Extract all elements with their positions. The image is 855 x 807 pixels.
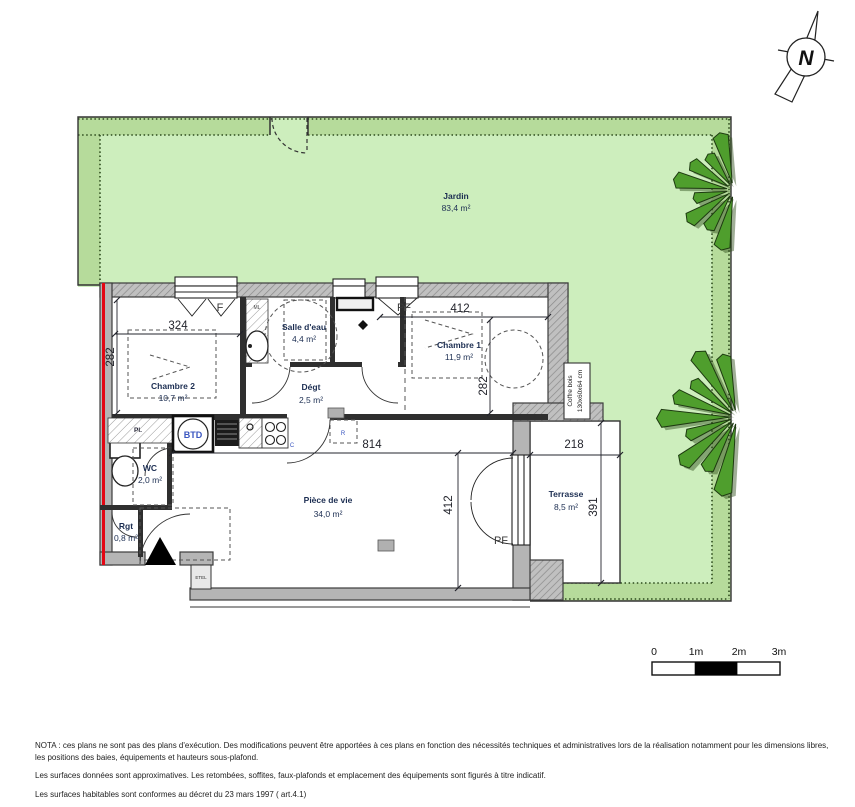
note-nota: NOTA : ces plans ne sont pas des plans d… — [35, 740, 835, 763]
note-surfaces: Les surfaces données sont approximatives… — [35, 770, 835, 782]
label-etel: ETEL — [195, 575, 207, 580]
room-label-rgt: Rgt — [119, 521, 133, 531]
room-area-degt: 2,5 m² — [299, 395, 323, 405]
label-pf-top: PF — [397, 302, 411, 314]
room-label-jardin: Jardin — [443, 191, 469, 201]
toilet-bowl — [112, 456, 138, 486]
scale-tick-1m: 1m — [689, 646, 704, 658]
room-area-chambre2: 10,7 m² — [159, 393, 188, 403]
scale-tick-3m: 3m — [772, 646, 787, 658]
label-washing-machine: ML — [254, 305, 261, 311]
label-coffre-2: 130x60x64 cm — [577, 370, 584, 412]
label-coffre-1: Coffre bois — [567, 375, 574, 407]
dim-piece-width: 814 — [362, 439, 382, 451]
room-label-chambre1: Chambre 1 — [437, 340, 481, 350]
label-cooktop: C — [290, 443, 295, 449]
north-label: N — [798, 47, 814, 70]
note-decret: Les surfaces habitables sont conformes a… — [35, 789, 835, 801]
label-btd: BTD — [184, 430, 203, 440]
room-area-piece-de-vie: 34,0 m² — [314, 509, 343, 519]
floor-plan-svg: Jardin 83,4 m² — [0, 0, 855, 738]
room-area-wc: 2,0 m² — [138, 475, 162, 485]
room-area-salle-deau: 4,4 m² — [292, 334, 316, 344]
dim-chambre1-width: 412 — [450, 303, 469, 315]
dim-chambre2-depth: 282 — [105, 347, 117, 366]
scale-tick-0: 0 — [651, 646, 657, 658]
room-label-salle-deau: Salle d'eau — [282, 322, 326, 332]
dim-terrasse-width: 218 — [564, 439, 583, 451]
radiator — [378, 540, 394, 551]
scale-bar: 0 1m 2m 3m — [651, 646, 786, 675]
north-arrow-icon: N — [775, 11, 834, 102]
dim-terrasse-depth: 391 — [588, 497, 600, 516]
label-fridge: R — [341, 431, 346, 437]
sink — [239, 418, 262, 448]
radiator — [328, 408, 344, 418]
room-area-chambre1: 11,9 m² — [445, 352, 473, 362]
room-area-rgt: 0,8 m² — [114, 533, 138, 543]
room-label-degt: Dégt — [302, 382, 321, 392]
room-area-jardin: 83,4 m² — [442, 203, 471, 213]
dim-chambre2-width: 324 — [168, 320, 188, 332]
room-label-chambre2: Chambre 2 — [151, 381, 195, 391]
label-placard: Pl. — [134, 427, 142, 434]
room-label-piece-de-vie: Pièce de vie — [304, 495, 353, 505]
scale-tick-2m: 2m — [732, 646, 747, 658]
dim-piece-depth: 412 — [443, 495, 455, 514]
room-label-wc: WC — [143, 463, 157, 473]
room-label-terrasse: Terrasse — [549, 489, 584, 499]
room-area-terrasse: 8,5 m² — [554, 502, 578, 512]
dim-chambre1-depth: 282 — [478, 376, 490, 395]
label-window-f: F — [217, 302, 224, 314]
label-pf-terrasse: PF — [494, 535, 508, 547]
property-boundary-red-line — [102, 283, 105, 565]
notes-block: NOTA : ces plans ne sont pas des plans d… — [35, 740, 835, 807]
floor-plan: Jardin 83,4 m² — [0, 0, 855, 738]
